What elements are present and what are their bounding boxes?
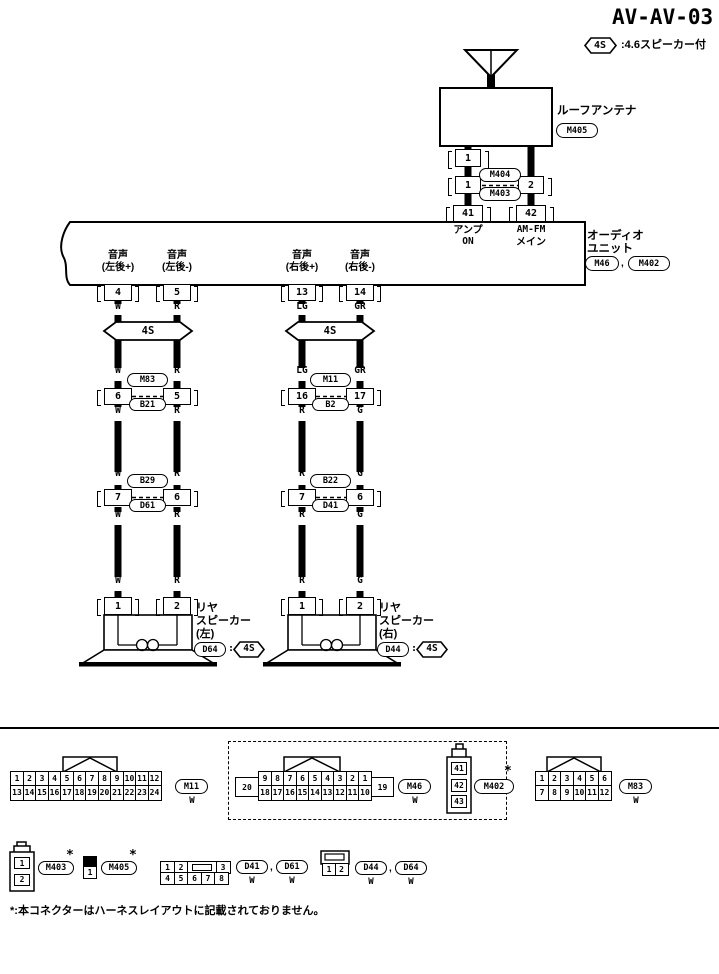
4s-tag: 4S [426, 644, 437, 655]
wire-color-label: R [299, 406, 305, 417]
m46-pin-grid-row2: 181716151413121110 [258, 785, 372, 801]
pin5-label-line1: 音声 [167, 250, 187, 262]
pin-bracket [550, 207, 554, 223]
m402-connector-oval: M402 [628, 256, 670, 271]
wire-color-label: W [115, 406, 121, 417]
wire-color-label: W [115, 469, 121, 480]
wire-color-label: W [115, 510, 121, 521]
audio-unit-name-line1: オーディオ [587, 230, 644, 243]
wiring-diagram-page: AV-AV-03 4S :4.6スピーカー付 ルーフアンテナ M405 1 1 … [0, 0, 719, 974]
pin5-label-line2: (左後-) [162, 262, 192, 274]
wire-color-label: W [115, 366, 121, 377]
junction-pin-box: 17 [346, 388, 374, 405]
d64-view-oval: D64 [395, 861, 427, 875]
speaker-pin-box: 2 [163, 597, 191, 615]
pin-box-13: 13 [288, 284, 316, 301]
wire-color-label: R [299, 469, 305, 480]
connector-comma: , [389, 863, 392, 875]
pin-bracket [97, 599, 101, 616]
wire-column-right-minus [357, 299, 364, 598]
wire-color-label: LG [296, 302, 307, 313]
wire-color-label: R [174, 469, 180, 480]
pin-bracket [97, 491, 101, 507]
pin-bracket [509, 207, 513, 223]
wire-color-label: LG [296, 366, 307, 377]
b2-connector-oval: B2 [312, 398, 349, 411]
speaker-left-name-line3: (左) [196, 628, 214, 641]
pin-bracket [446, 207, 450, 223]
wire-column-left-plus [115, 299, 122, 598]
audio-unit-box [61, 222, 585, 285]
d61-color: W [289, 876, 294, 886]
connector-comma: , [270, 862, 273, 874]
speaker-pin-box: 1 [104, 597, 132, 615]
m404-connector-oval: M404 [479, 168, 521, 182]
b29-connector-oval: B29 [127, 474, 168, 488]
pin-cell: 2 [14, 874, 30, 886]
d64-connector-oval: D64 [194, 642, 226, 657]
pin-box-42: 42 [516, 205, 546, 222]
speaker-pin-box: 2 [346, 597, 374, 615]
pin-bracket [97, 390, 101, 406]
m83-pin-grid-row2: 789101112 [535, 785, 612, 801]
d41-view-oval: D41 [236, 860, 268, 874]
d61-connector-oval: D61 [129, 499, 166, 512]
d44-view-oval: D44 [355, 861, 387, 875]
pin-bracket [281, 390, 285, 406]
wire-color-label: R [174, 366, 180, 377]
m11-view-oval: M11 [175, 779, 208, 794]
m405-star: * [129, 849, 137, 864]
wire-color-label: GR [354, 366, 365, 377]
option-note-text: :4.6スピーカー付 [621, 39, 706, 52]
pin41-function-line2: ON [462, 237, 473, 248]
speaker-right-name-line1: リヤ [379, 602, 401, 615]
pin-bracket [156, 599, 160, 616]
diagram-line-art [0, 0, 719, 974]
pin4-label-line2: (左後+) [102, 262, 135, 274]
wire-color-label: W [115, 576, 121, 587]
pin-bracket [97, 286, 101, 302]
pin-bracket [194, 286, 198, 302]
speaker-pin-box: 1 [288, 597, 316, 615]
wire-color-label: G [357, 469, 363, 480]
connector-comma: , [621, 258, 624, 270]
4s-tag: 4S [243, 644, 254, 655]
junction-pin-box: 2 [518, 176, 544, 194]
pin-bracket [448, 151, 452, 169]
d64-color: W [408, 877, 413, 887]
audio-unit-name-line2: ユニット [587, 243, 633, 256]
d44-connector-oval: D44 [377, 642, 409, 657]
pin-bracket [319, 599, 323, 616]
pin-bracket [377, 491, 381, 507]
roof-antenna-label: ルーフアンテナ [557, 105, 636, 118]
speaker-right-name-line2: スピーカー [379, 615, 434, 628]
pin42-function-line2: メイン [516, 237, 546, 249]
speaker-right-name-line3: (右) [379, 628, 397, 641]
m83-view-oval: M83 [619, 779, 652, 794]
pin-bracket [339, 599, 343, 616]
pin13-label-line2: (右後+) [286, 262, 319, 274]
wire-color-label: R [174, 576, 180, 587]
page-title: AV-AV-03 [612, 5, 712, 29]
d61-view-oval: D61 [276, 860, 308, 874]
b21-connector-oval: B21 [129, 398, 166, 411]
m403-pin-cells: 12 [14, 857, 30, 886]
pin-box-14: 14 [346, 284, 374, 301]
pin-bracket [281, 286, 285, 302]
b22-connector-oval: B22 [310, 474, 351, 488]
colon: : [411, 643, 417, 655]
junction-pin-box: 1 [455, 176, 481, 194]
colon: : [228, 643, 234, 655]
pin-bracket [281, 491, 285, 507]
pin-bracket [487, 207, 491, 223]
option-4s-tag: 4S [594, 40, 606, 52]
pin-cell: 2 [335, 863, 349, 876]
pin14-label-line2: (右後-) [345, 262, 375, 274]
d41-color: W [249, 876, 254, 886]
d44-color: W [368, 877, 373, 887]
m402-star: * [504, 765, 512, 780]
pin-bracket [377, 286, 381, 302]
pin-bracket [448, 178, 452, 196]
pin-cell: 43 [451, 795, 467, 808]
m11-color: W [189, 796, 194, 806]
junction-pin-box: 5 [163, 388, 191, 405]
pin-bracket [194, 390, 198, 406]
pin42-function-line1: AM-FM [517, 225, 546, 236]
pin4-label-line1: 音声 [108, 250, 128, 262]
pin-bracket [339, 286, 343, 302]
wire-color-label: R [174, 406, 180, 417]
wire-color-label: R [174, 302, 180, 313]
pin-bracket [135, 599, 139, 616]
pin-cell: 42 [451, 779, 467, 792]
pin-cell: 10 [358, 785, 372, 801]
m403-connector-oval: M403 [479, 187, 521, 201]
pin-box-41: 41 [453, 205, 483, 222]
pin-cell: 24 [148, 785, 162, 801]
wire-column-left-minus [174, 299, 181, 598]
latch-slot [192, 864, 212, 871]
wire-color-label: G [357, 576, 363, 587]
footer-note: *:本コネクターはハーネスレイアウトに記載されておりません。 [10, 905, 325, 918]
m46-cell-20: 20 [235, 777, 259, 797]
roof-antenna-box [440, 88, 552, 146]
pin-bracket [319, 286, 323, 302]
wire-color-label: W [115, 302, 121, 313]
4s-harness-tag: 4S [324, 325, 337, 337]
antenna-pin-box: 1 [455, 149, 481, 167]
pin-bracket [156, 286, 160, 302]
m403-star: * [66, 849, 74, 864]
pin-box-5: 5 [163, 284, 191, 301]
m11-connector-oval: M11 [310, 373, 351, 387]
pin-cell: 41 [451, 762, 467, 775]
pin-bracket [281, 599, 285, 616]
wire-color-label: R [299, 510, 305, 521]
d41-connector-oval: D41 [312, 499, 349, 512]
wire-color-label: GR [354, 302, 365, 313]
junction-pin-box: 7 [104, 489, 132, 506]
pin-bracket [135, 286, 139, 302]
junction-pin-box: 6 [346, 489, 374, 506]
junction-pin-box: 6 [163, 489, 191, 506]
wire-column-right-plus [299, 299, 306, 598]
m83-connector-oval: M83 [127, 373, 168, 387]
d44-pin-cells: 12 [322, 863, 349, 876]
pin-bracket [548, 178, 552, 196]
junction-pin-box: 6 [104, 388, 132, 405]
m46-connector-oval: M46 [585, 256, 619, 271]
wire-color-label: R [299, 576, 305, 587]
m402-pin-cells: 414243 [451, 762, 467, 808]
wire-color-label: G [357, 406, 363, 417]
pin-cell: 12 [598, 785, 612, 801]
m11-pin-grid-row2: 131415161718192021222324 [10, 785, 162, 801]
section-divider [0, 727, 719, 729]
m405-connector-oval: M405 [556, 123, 598, 138]
wire-color-label: G [357, 510, 363, 521]
speaker-left-name-line1: リヤ [196, 602, 218, 615]
m46-cell-19: 19 [371, 777, 394, 797]
m402-view-oval: M402 [474, 779, 514, 794]
4s-harness-tag: 4S [142, 325, 155, 337]
antenna-icon [465, 50, 517, 90]
pin-bracket [194, 491, 198, 507]
pin-cell: 1 [14, 857, 30, 869]
m46-view-oval: M46 [398, 779, 431, 794]
m405-pin-cell: 1 [83, 866, 97, 879]
pin13-label-line1: 音声 [292, 250, 312, 262]
pin14-label-line1: 音声 [350, 250, 370, 262]
wire-color-label: R [174, 510, 180, 521]
pin-box-4: 4 [104, 284, 132, 301]
pin-cell: 8 [214, 872, 229, 885]
m83-color: W [633, 796, 638, 806]
d41-pin-grid-row2: 45678 [160, 872, 229, 885]
pin41-function-line1: アンプ [453, 225, 482, 237]
speaker-left-name-line2: スピーカー [196, 615, 251, 628]
m46-color: W [412, 796, 417, 806]
pin-bracket [485, 151, 489, 169]
pin-bracket [377, 390, 381, 406]
